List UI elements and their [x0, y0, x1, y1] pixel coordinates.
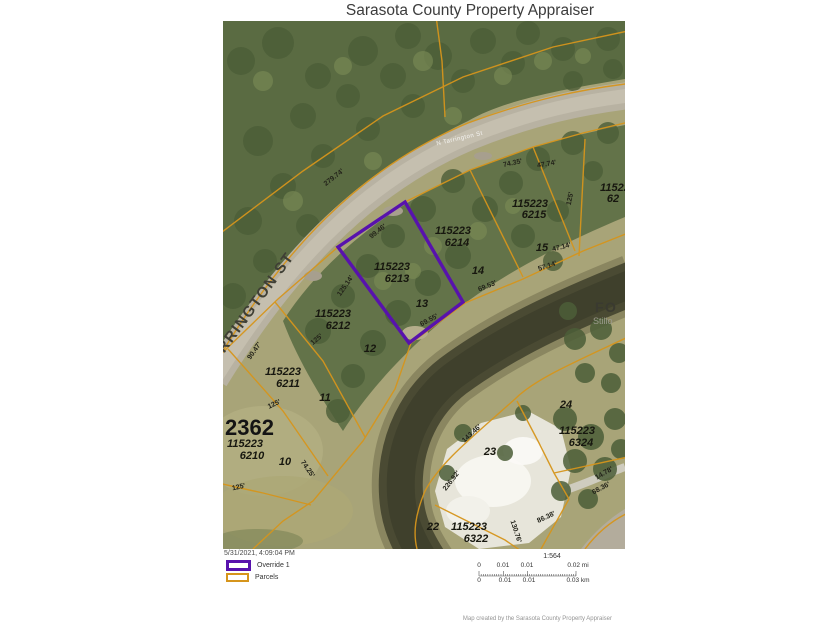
- lot-number-label: 11: [319, 392, 330, 404]
- tree-blob: [395, 23, 421, 49]
- legend-item-override: Override 1: [226, 560, 290, 571]
- parcel-id-label: 62: [607, 193, 619, 205]
- parcels-swatch-icon: [226, 573, 249, 582]
- tree-blob: [441, 169, 465, 193]
- lot-number-label: 22: [426, 521, 439, 533]
- tree-blob: [511, 224, 535, 248]
- parcel-id-label: 6214: [445, 237, 469, 249]
- scale-km-label: 0: [477, 577, 481, 584]
- parcel-id-label: 6210: [240, 450, 265, 462]
- tree-blob: [601, 373, 621, 393]
- legend-label: Parcels: [255, 574, 278, 581]
- lot-number-label: 23: [483, 446, 496, 458]
- tree-blob: [551, 37, 575, 61]
- tree-blob: [563, 71, 583, 91]
- scale-mi-label: 0.02 mi: [567, 562, 588, 569]
- tree-blob: [564, 328, 586, 350]
- scale-km-label: 0.01: [499, 577, 512, 584]
- override-swatch-icon: [226, 560, 251, 571]
- tree-blob: [575, 48, 591, 64]
- lot-number-label: 24: [559, 399, 572, 411]
- scale-mi-label: 0.01: [521, 562, 534, 569]
- scale-mi-label: 0.01: [497, 562, 510, 569]
- water-label-line1: FO: [595, 299, 617, 315]
- tree-blob: [243, 126, 273, 156]
- tree-blob: [311, 144, 335, 168]
- tree-blob: [563, 449, 587, 473]
- tree-blob: [336, 84, 360, 108]
- tree-blob: [234, 207, 262, 235]
- parcel-id-label: 115223: [435, 225, 471, 237]
- tree-blob: [364, 152, 382, 170]
- parcel-id-label: 6215: [522, 209, 547, 221]
- tree-blob: [444, 107, 462, 125]
- tree-blob: [348, 36, 378, 66]
- scale-bar-ticks: [470, 570, 610, 577]
- tree-blob: [575, 363, 595, 383]
- tree-blob: [469, 222, 487, 240]
- tree-blob: [413, 51, 433, 71]
- road-wear: [304, 271, 322, 281]
- tree-blob: [561, 131, 585, 155]
- tree-blob: [596, 27, 620, 51]
- scale-ratio: 1:564: [543, 553, 561, 560]
- tree-blob: [283, 191, 303, 211]
- parcel-id-label: 115223: [265, 366, 301, 378]
- parcel-id-label: 115223: [315, 308, 351, 320]
- tree-blob: [227, 47, 255, 75]
- lot-number-label: 14: [472, 265, 484, 277]
- area-number: 2362: [225, 415, 274, 440]
- scale-bar: 1:564 0 0.01 0.01 0.02 mi 0 0.01 0.01 0.…: [470, 553, 620, 589]
- lot-number-label: 15: [536, 242, 549, 254]
- parcel-id-label: 6324: [569, 437, 593, 449]
- tree-blob: [534, 52, 552, 70]
- legend-item-parcels: Parcels: [226, 573, 278, 582]
- scale-km-label: 0.01: [523, 577, 536, 584]
- page-title: Sarasota County Property Appraiser: [346, 2, 594, 20]
- tree-blob: [290, 103, 316, 129]
- map-canvas: TARRINGTON ST N Tarrington St 2362 FO St…: [223, 21, 625, 549]
- scale-mi-label: 0: [477, 562, 481, 569]
- map-timestamp: 5/31/2021, 4:09:04 PM: [224, 550, 295, 557]
- parcel-id-label: 6213: [385, 273, 409, 285]
- parcel-id-label: 6211: [276, 378, 300, 390]
- lot-number-label: 12: [364, 343, 376, 355]
- parcel-id-label: 115223: [559, 425, 595, 437]
- aerial-map-image: TARRINGTON ST N Tarrington St 2362 FO St…: [223, 21, 625, 549]
- map-attribution: Map created by the Sarasota County Prope…: [463, 616, 612, 622]
- tree-blob: [516, 21, 540, 45]
- lot-number-label: 10: [279, 456, 292, 468]
- legend-label: Override 1: [257, 562, 290, 569]
- scale-km-label: 0.03 km: [566, 577, 589, 584]
- tree-blob: [604, 408, 625, 430]
- tree-blob: [603, 59, 623, 79]
- parcel-id-label: 6322: [464, 533, 488, 545]
- tree-blob: [499, 171, 523, 195]
- tree-blob: [494, 67, 512, 85]
- tree-blob: [470, 28, 496, 54]
- tree-blob: [559, 302, 577, 320]
- water-label-line2: Stillo: [593, 316, 613, 326]
- lot-number-label: 13: [416, 298, 428, 310]
- tree-blob: [380, 63, 406, 89]
- tree-blob: [305, 63, 331, 89]
- tree-blob: [334, 57, 352, 75]
- parcel-id-label: 115223: [374, 261, 410, 273]
- parcel-id-label: 115223: [451, 521, 487, 533]
- parcel-id-label: 6212: [326, 320, 350, 332]
- parcel-id-label: 115223: [227, 438, 263, 450]
- scale-ticks-path: [479, 571, 576, 576]
- tree-blob: [341, 364, 365, 388]
- tree-blob: [583, 161, 603, 181]
- tree-blob: [497, 445, 513, 461]
- tree-blob: [253, 71, 273, 91]
- tree-blob: [262, 27, 294, 59]
- road-wear: [474, 152, 492, 160]
